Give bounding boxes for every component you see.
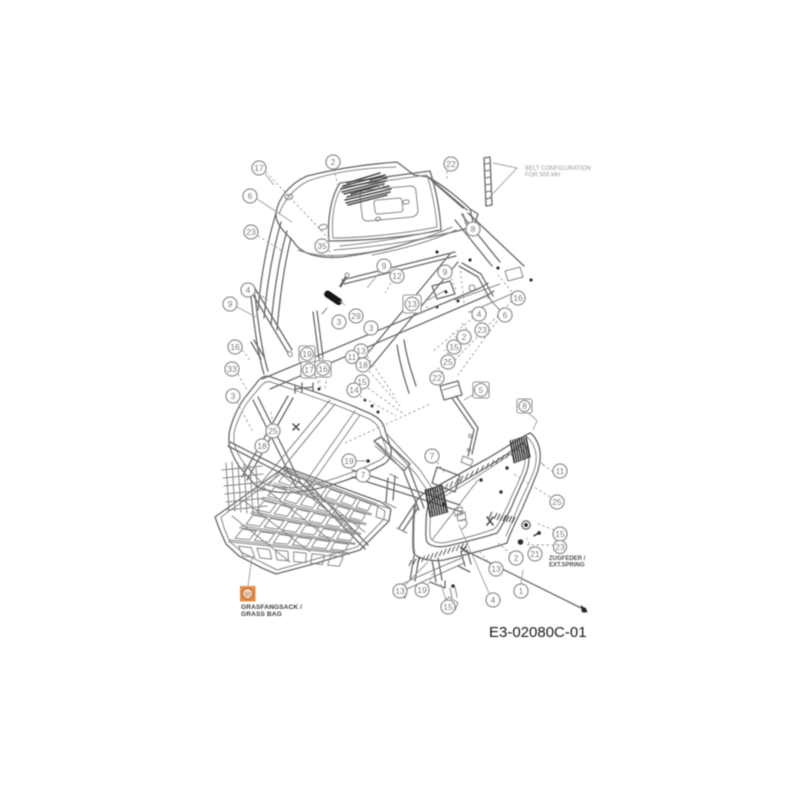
svg-text:2: 2 bbox=[462, 332, 467, 342]
svg-text:23: 23 bbox=[246, 227, 256, 237]
svg-text:19: 19 bbox=[417, 585, 427, 595]
svg-text:GRASFANGSACK /: GRASFANGSACK / bbox=[241, 604, 302, 611]
svg-text:16: 16 bbox=[318, 364, 328, 374]
svg-text:3: 3 bbox=[337, 317, 342, 327]
svg-text:5: 5 bbox=[479, 385, 484, 395]
svg-text:22: 22 bbox=[446, 159, 456, 169]
svg-text:19: 19 bbox=[344, 456, 354, 466]
svg-text:13: 13 bbox=[407, 299, 417, 309]
svg-text:4: 4 bbox=[491, 595, 496, 605]
svg-text:15: 15 bbox=[555, 529, 565, 539]
svg-text:25: 25 bbox=[552, 497, 562, 507]
svg-text:4: 4 bbox=[246, 285, 251, 295]
svg-text:18: 18 bbox=[257, 441, 267, 451]
svg-text:14: 14 bbox=[349, 385, 359, 395]
svg-text:9: 9 bbox=[443, 267, 448, 277]
svg-text:13: 13 bbox=[395, 586, 405, 596]
svg-text:9: 9 bbox=[228, 299, 233, 309]
svg-text:FOR 500 MH: FOR 500 MH bbox=[525, 173, 560, 179]
svg-text:7: 7 bbox=[361, 470, 366, 480]
svg-text:18: 18 bbox=[358, 360, 368, 370]
svg-text:15: 15 bbox=[443, 602, 453, 612]
svg-text:8: 8 bbox=[471, 224, 476, 234]
svg-text:15: 15 bbox=[449, 342, 459, 352]
svg-text:17: 17 bbox=[254, 163, 264, 173]
svg-text:6: 6 bbox=[248, 191, 253, 201]
svg-text:35: 35 bbox=[317, 241, 327, 251]
svg-text:2: 2 bbox=[331, 157, 336, 167]
svg-text:29: 29 bbox=[351, 311, 361, 321]
svg-text:9: 9 bbox=[382, 261, 387, 271]
svg-text:22: 22 bbox=[432, 373, 442, 383]
svg-text:4: 4 bbox=[477, 309, 482, 319]
svg-text:16: 16 bbox=[230, 342, 240, 352]
svg-text:ZUGFEDER /: ZUGFEDER / bbox=[549, 556, 586, 562]
svg-text:23: 23 bbox=[555, 542, 565, 552]
svg-text:EXT.SPRING: EXT.SPRING bbox=[549, 563, 585, 569]
svg-text:30: 30 bbox=[244, 591, 252, 598]
svg-text:12: 12 bbox=[392, 271, 402, 281]
svg-text:2: 2 bbox=[514, 553, 519, 563]
svg-text:6: 6 bbox=[503, 310, 508, 320]
svg-text:3: 3 bbox=[231, 391, 236, 401]
svg-text:BELT CONFIGURATION: BELT CONFIGURATION bbox=[525, 166, 591, 172]
svg-text:3: 3 bbox=[369, 323, 374, 333]
svg-text:21: 21 bbox=[530, 549, 540, 559]
svg-text:25: 25 bbox=[443, 357, 453, 367]
svg-text:1: 1 bbox=[519, 586, 524, 596]
svg-text:25: 25 bbox=[268, 426, 278, 436]
svg-text:33: 33 bbox=[227, 364, 237, 374]
svg-text:8: 8 bbox=[522, 401, 527, 411]
svg-text:E3-02080C-01: E3-02080C-01 bbox=[489, 624, 587, 641]
svg-text:7: 7 bbox=[430, 451, 435, 461]
svg-text:17: 17 bbox=[304, 365, 314, 375]
svg-text:19: 19 bbox=[302, 349, 312, 359]
svg-text:11: 11 bbox=[556, 466, 565, 476]
svg-text:23: 23 bbox=[477, 325, 487, 335]
svg-text:13: 13 bbox=[491, 564, 501, 574]
svg-text:11: 11 bbox=[348, 352, 357, 362]
svg-text:GRASS BAG: GRASS BAG bbox=[241, 611, 282, 618]
svg-text:16: 16 bbox=[513, 293, 523, 303]
